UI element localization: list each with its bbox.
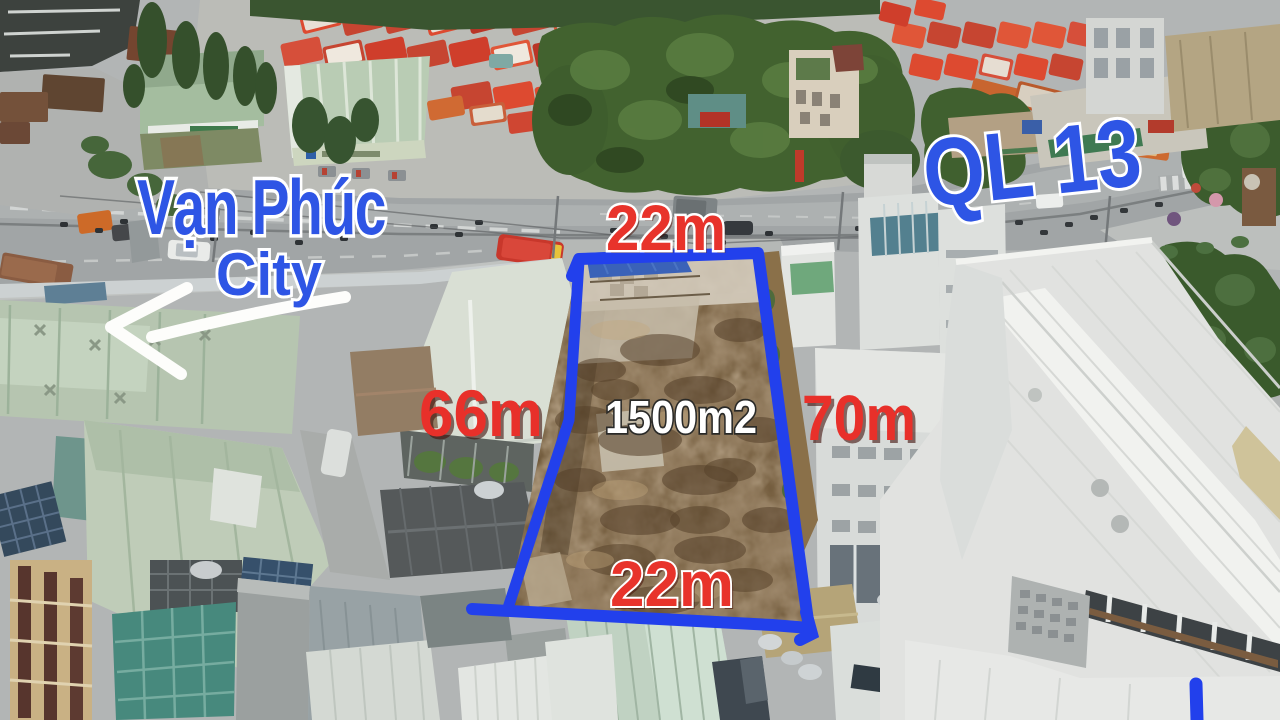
svg-text:22m: 22m bbox=[606, 192, 726, 264]
svg-text:QL 13: QL 13 bbox=[918, 99, 1146, 228]
svg-text:66m: 66m bbox=[419, 376, 543, 450]
svg-text:City: City bbox=[216, 241, 323, 308]
svg-text:70m: 70m bbox=[802, 382, 916, 454]
svg-text:Vạn Phúc: Vạn Phúc bbox=[137, 163, 385, 251]
svg-text:22m: 22m bbox=[610, 548, 734, 620]
svg-text:1500m2: 1500m2 bbox=[605, 391, 757, 443]
